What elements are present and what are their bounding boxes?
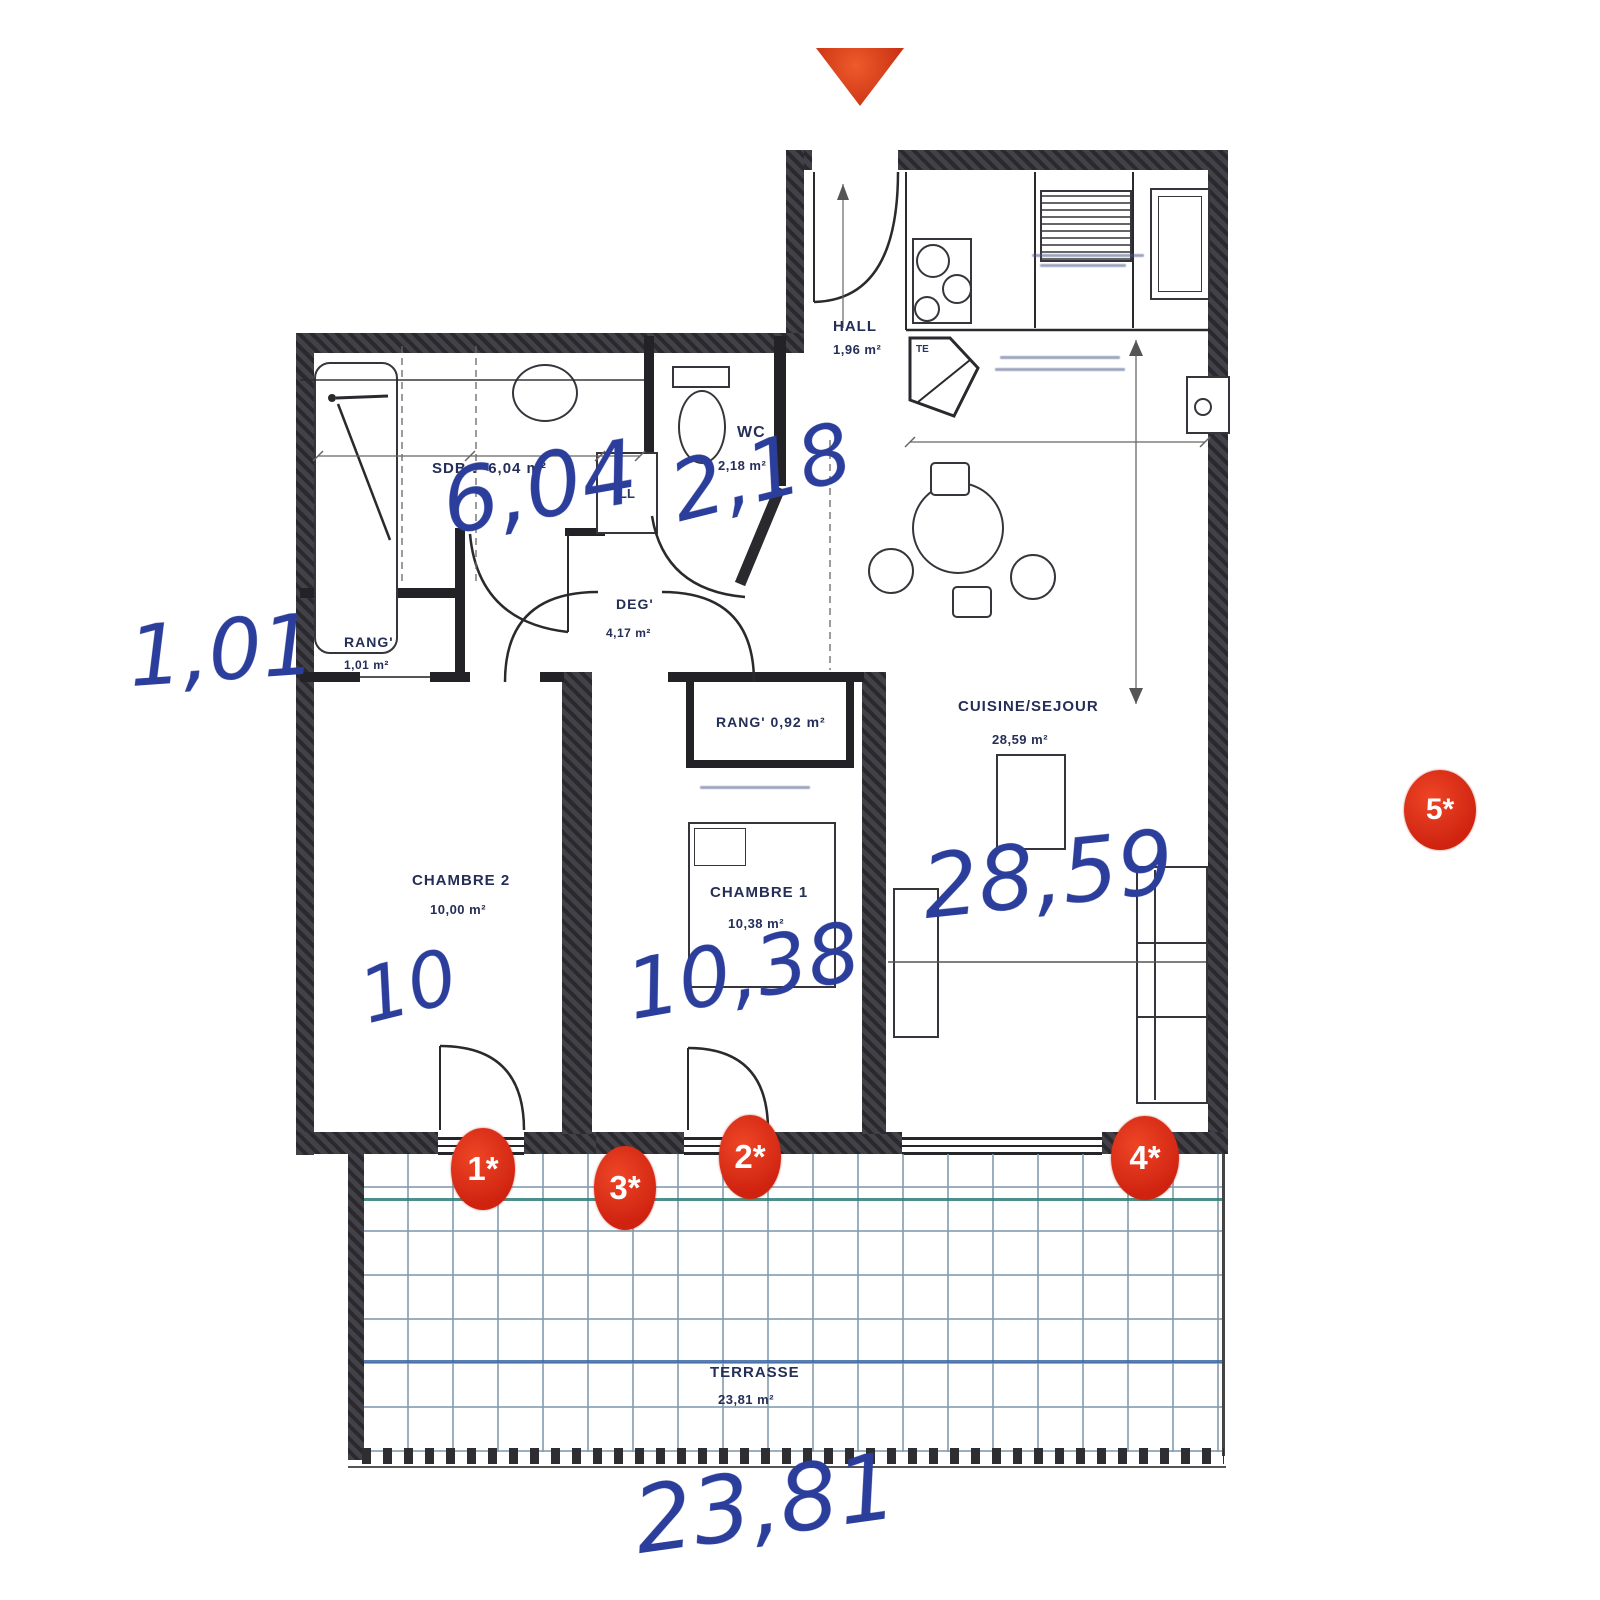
floor-plan-scan: LL <box>0 0 1600 1600</box>
room-area-cuisine-sejour: 28,59 m² <box>992 732 1048 747</box>
room-area-chambre2: 10,00 m² <box>430 902 486 917</box>
terrace-right-edge <box>1222 1154 1225 1456</box>
fine-print-note <box>1032 254 1144 257</box>
marker-1: 1* <box>451 1128 515 1210</box>
terrace-left-wall <box>348 1154 364 1460</box>
room-label-chambre1: CHAMBRE 1 <box>710 884 808 901</box>
room-area-deg: 4,17 m² <box>606 626 651 640</box>
fine-print-note <box>1000 356 1120 359</box>
terrace-blue-line <box>362 1360 1224 1363</box>
marker-3: 3* <box>594 1146 656 1230</box>
marker-label: 2* <box>734 1138 765 1176</box>
fine-print-note <box>700 786 810 789</box>
fine-print-note <box>1040 264 1126 267</box>
room-area-terrasse: 23,81 m² <box>718 1392 774 1407</box>
marker-label: 4* <box>1129 1139 1160 1177</box>
room-label-terrasse: TERRASSE <box>710 1364 800 1381</box>
room-label-chambre2: CHAMBRE 2 <box>412 872 510 889</box>
room-label-hall: HALL <box>833 318 877 335</box>
marker-2: 2* <box>719 1115 781 1199</box>
room-label-rang1: RANG' <box>344 634 394 650</box>
room-name: RANG' <box>716 714 766 730</box>
marker-label: 1* <box>467 1150 498 1188</box>
handwritten-rang-left: 1,01 <box>125 595 318 706</box>
fine-print-note <box>995 368 1125 371</box>
room-label-deg: DEG' <box>616 596 654 612</box>
marker-label: 5* <box>1426 793 1454 827</box>
marker-5: 5* <box>1404 770 1476 850</box>
marker-label: 3* <box>609 1169 640 1207</box>
room-area-rang1: 1,01 m² <box>344 658 389 672</box>
marker-4: 4* <box>1111 1116 1179 1200</box>
room-area: 0,92 m² <box>770 714 825 730</box>
room-area-hall: 1,96 m² <box>833 342 881 357</box>
room-label-cuisine-sejour: CUISINE/SEJOUR <box>958 698 1099 715</box>
room-label-rang2: RANG' 0,92 m² <box>716 714 826 730</box>
closet-label: TE <box>916 344 929 355</box>
